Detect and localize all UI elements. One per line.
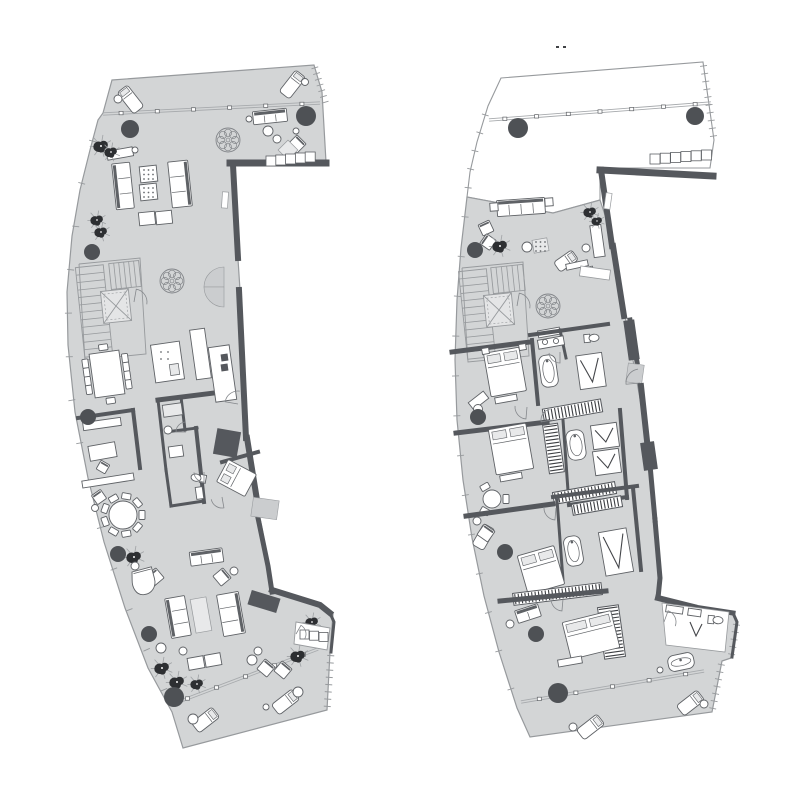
side-table bbox=[188, 714, 198, 724]
storage-row bbox=[286, 154, 296, 164]
terrace-railing-line bbox=[503, 117, 507, 120]
column bbox=[548, 683, 568, 703]
coffee-table bbox=[187, 656, 205, 671]
coffee-table bbox=[138, 211, 155, 226]
dots bbox=[535, 250, 537, 252]
annotation-dot bbox=[556, 46, 559, 48]
storage-row bbox=[691, 151, 701, 161]
column bbox=[164, 687, 184, 707]
dots bbox=[152, 169, 154, 171]
lower-level-plan bbox=[65, 65, 334, 748]
duct-block bbox=[213, 428, 241, 458]
floor-plans-canvas bbox=[0, 0, 800, 800]
column bbox=[84, 244, 100, 260]
side-table bbox=[490, 203, 499, 212]
dots bbox=[540, 246, 542, 248]
side-table bbox=[302, 79, 309, 86]
bed bbox=[488, 423, 533, 475]
dots bbox=[540, 250, 542, 252]
round-dining-table bbox=[139, 511, 145, 520]
nightstand bbox=[519, 343, 527, 350]
terrace-railing-line bbox=[598, 110, 602, 113]
pouf bbox=[506, 620, 514, 628]
storage-row bbox=[276, 155, 286, 165]
terrace-glass-wall bbox=[264, 104, 268, 107]
piano-stool bbox=[131, 562, 139, 570]
dots bbox=[167, 358, 169, 360]
side-table bbox=[657, 667, 663, 673]
side-table bbox=[293, 687, 303, 697]
round-dining-table bbox=[109, 501, 137, 529]
appliance bbox=[221, 354, 229, 362]
coffee-table bbox=[155, 210, 172, 225]
dots bbox=[535, 241, 537, 243]
side-table bbox=[254, 647, 262, 655]
breakfast-table bbox=[483, 490, 501, 508]
plant bbox=[499, 245, 501, 247]
balcony-glass-wall bbox=[574, 691, 578, 694]
column bbox=[296, 106, 316, 126]
dots bbox=[544, 241, 546, 243]
column bbox=[80, 409, 96, 425]
window-slot bbox=[221, 192, 228, 208]
island-sink bbox=[169, 363, 179, 375]
vanity bbox=[688, 608, 702, 617]
pouf bbox=[293, 128, 299, 134]
kitchen-island bbox=[150, 341, 184, 383]
breakfast-table bbox=[503, 495, 509, 504]
storage-row bbox=[660, 153, 670, 163]
lamp bbox=[132, 147, 138, 153]
dots bbox=[160, 351, 162, 353]
dots bbox=[148, 192, 150, 194]
storage-row bbox=[671, 152, 681, 162]
shower bbox=[592, 448, 621, 475]
dots bbox=[540, 241, 542, 243]
coffee-table bbox=[204, 653, 222, 668]
terrace-railing-line bbox=[566, 112, 570, 115]
balcony-glass-wall bbox=[537, 697, 541, 700]
annotation-dot bbox=[563, 46, 566, 48]
service-door bbox=[251, 497, 279, 519]
balcony-glass-wall bbox=[647, 679, 651, 682]
dots bbox=[143, 187, 145, 189]
elevator bbox=[100, 289, 131, 324]
side-table bbox=[247, 655, 257, 665]
balcony-glass-wall bbox=[244, 675, 248, 678]
plant bbox=[589, 211, 591, 213]
side-table bbox=[92, 505, 99, 512]
washbasin bbox=[542, 339, 547, 344]
terrace-glass-wall bbox=[191, 108, 195, 111]
dots bbox=[148, 169, 150, 171]
dots bbox=[143, 178, 145, 180]
terrace-railing-line bbox=[535, 115, 539, 118]
storage-row bbox=[650, 154, 660, 164]
sofa bbox=[497, 197, 546, 216]
dots bbox=[160, 358, 162, 360]
plant bbox=[100, 231, 102, 233]
dots bbox=[143, 174, 145, 176]
washbasin bbox=[164, 426, 172, 434]
sofa bbox=[168, 160, 193, 208]
terrace-glass-wall bbox=[228, 106, 232, 109]
storage-row bbox=[702, 150, 712, 160]
plant bbox=[311, 621, 313, 623]
column bbox=[141, 626, 157, 642]
round-table bbox=[522, 242, 532, 252]
plant bbox=[161, 667, 163, 669]
column bbox=[470, 409, 486, 425]
dots bbox=[143, 169, 145, 171]
dots bbox=[535, 246, 537, 248]
dots bbox=[544, 246, 546, 248]
balcony-glass-wall bbox=[684, 672, 688, 675]
appliance bbox=[221, 364, 229, 372]
pouf bbox=[273, 135, 281, 143]
column bbox=[467, 242, 483, 258]
dots bbox=[167, 351, 169, 353]
side-table bbox=[246, 116, 252, 122]
dots bbox=[152, 192, 154, 194]
column bbox=[508, 118, 528, 138]
dots bbox=[544, 250, 546, 252]
entry-door bbox=[626, 363, 644, 384]
plant bbox=[100, 145, 102, 147]
pouf bbox=[582, 244, 590, 252]
pouf bbox=[156, 643, 166, 653]
dots bbox=[152, 187, 154, 189]
nightstand bbox=[482, 347, 490, 354]
dots bbox=[143, 196, 145, 198]
dots bbox=[152, 174, 154, 176]
dots bbox=[152, 196, 154, 198]
dots bbox=[143, 192, 145, 194]
upper-level-plan bbox=[452, 62, 740, 740]
terrace-glass-wall bbox=[119, 111, 123, 114]
bed bbox=[483, 347, 526, 397]
pouf bbox=[263, 126, 273, 136]
dots bbox=[152, 178, 154, 180]
side-table bbox=[473, 517, 481, 525]
plant bbox=[96, 219, 98, 221]
washbasin bbox=[553, 338, 558, 343]
plant bbox=[133, 556, 135, 558]
column bbox=[686, 107, 704, 125]
terrace-glass-wall bbox=[300, 102, 304, 105]
floor-outline bbox=[67, 65, 333, 748]
balcony-glass-wall bbox=[215, 686, 219, 689]
dots bbox=[148, 178, 150, 180]
dots bbox=[148, 196, 150, 198]
round-dining-table bbox=[121, 530, 131, 537]
terrace-railing-line bbox=[693, 103, 697, 106]
side-table bbox=[569, 723, 577, 731]
shower bbox=[590, 422, 619, 449]
storage-row bbox=[266, 156, 276, 166]
storage-row bbox=[310, 631, 319, 640]
terrace-outline bbox=[467, 62, 714, 213]
column bbox=[121, 120, 139, 138]
terrace-railing-line bbox=[630, 107, 634, 110]
bath-bench bbox=[168, 445, 183, 458]
balcony-glass-wall bbox=[611, 685, 615, 688]
column bbox=[110, 546, 126, 562]
side-table bbox=[263, 704, 269, 710]
side-table bbox=[700, 700, 708, 708]
dots bbox=[148, 174, 150, 176]
plant bbox=[596, 220, 597, 221]
dots bbox=[148, 187, 150, 189]
terrace-glass-wall bbox=[155, 110, 159, 113]
plant bbox=[196, 683, 198, 685]
column bbox=[528, 626, 544, 642]
core-wall bbox=[600, 170, 713, 176]
side-table bbox=[545, 198, 554, 207]
storage-row bbox=[295, 153, 305, 163]
plant bbox=[110, 151, 112, 153]
column bbox=[497, 544, 513, 560]
floor-plan-page bbox=[0, 0, 800, 800]
plant bbox=[176, 681, 178, 683]
storage-row bbox=[319, 632, 328, 641]
storage-row bbox=[305, 152, 315, 162]
vanity bbox=[195, 487, 204, 500]
balcony-glass-wall bbox=[186, 697, 190, 700]
terrace-railing-line bbox=[661, 105, 665, 108]
round-dining-table bbox=[121, 493, 131, 500]
pouf bbox=[179, 647, 187, 655]
elevator bbox=[483, 293, 514, 328]
shower bbox=[576, 352, 606, 389]
side-table bbox=[114, 95, 122, 103]
storage-row bbox=[300, 630, 309, 639]
plant bbox=[297, 655, 299, 657]
storage-row bbox=[681, 152, 691, 162]
shower-tray bbox=[162, 403, 182, 418]
side-table bbox=[230, 567, 238, 575]
